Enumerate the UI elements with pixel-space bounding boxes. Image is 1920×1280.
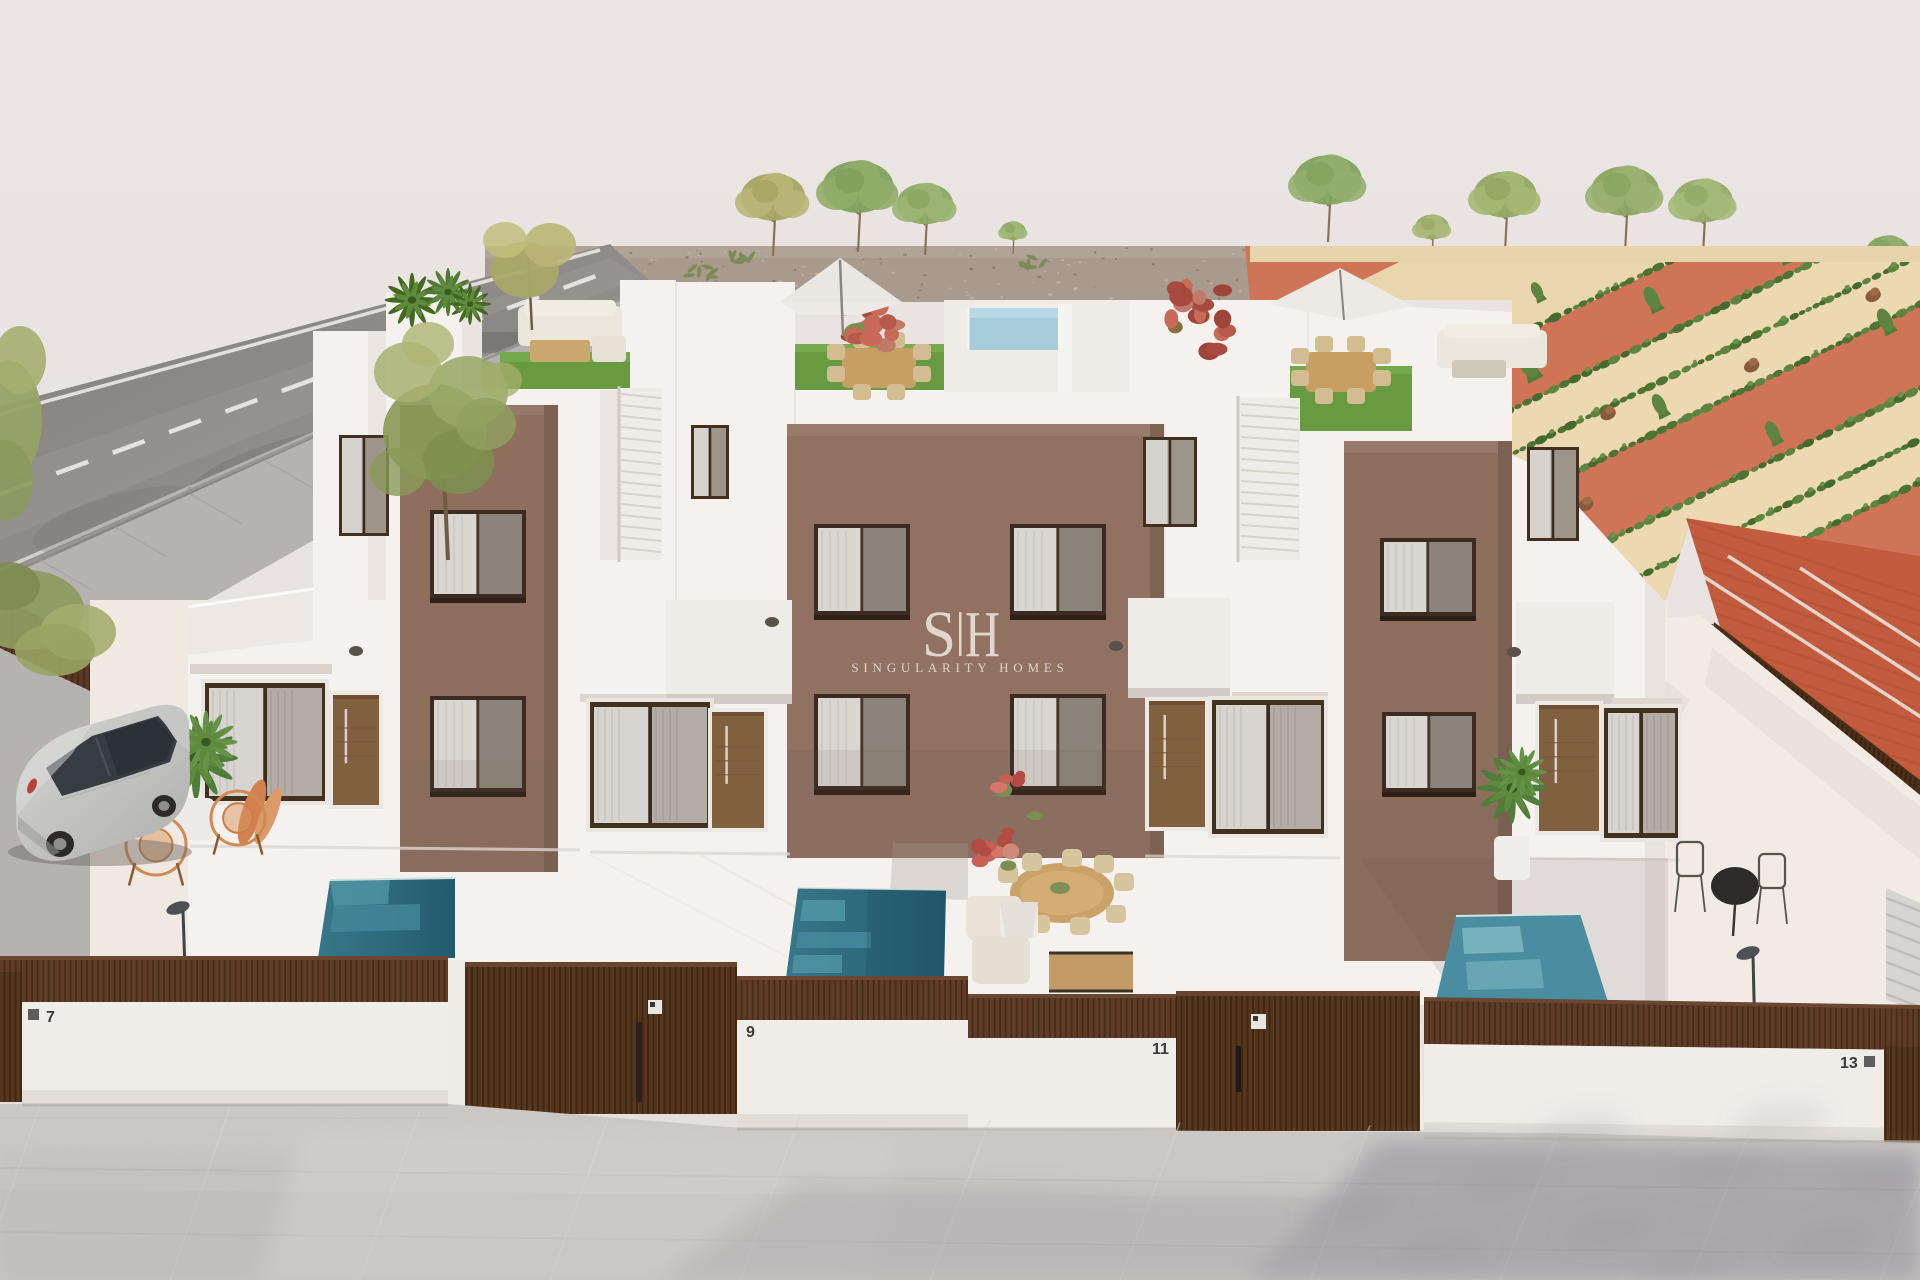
svg-text:13: 13	[1840, 1055, 1858, 1072]
svg-text:SINGULARITY HOMES: SINGULARITY HOMES	[851, 660, 1068, 675]
svg-text:7: 7	[46, 1009, 55, 1026]
svg-text:11: 11	[1152, 1041, 1169, 1058]
svg-text:9: 9	[746, 1024, 755, 1041]
